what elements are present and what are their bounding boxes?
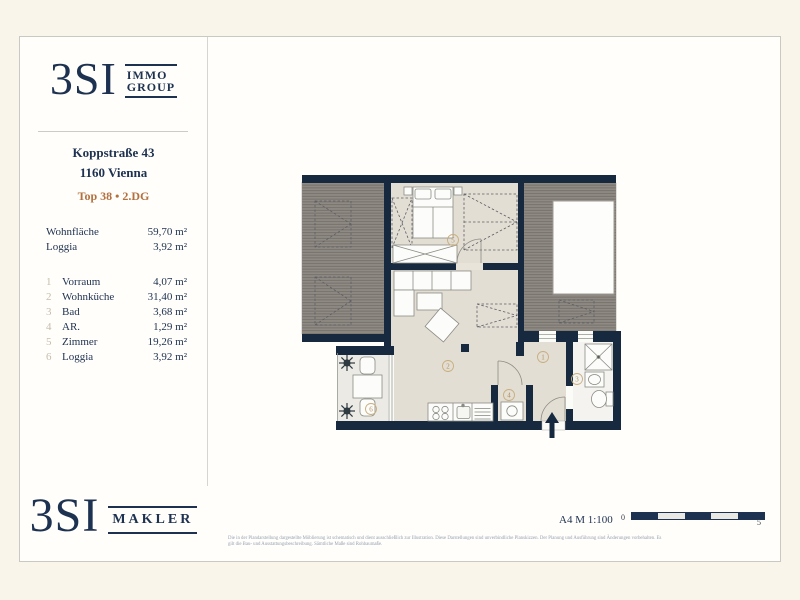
kitchen-counter — [428, 403, 493, 421]
address-block: Koppstraße 43 1160 Vienna — [20, 143, 207, 183]
window-icon — [539, 331, 556, 342]
logo-3si-text: 3SI — [50, 57, 117, 101]
svg-text:2: 2 — [446, 363, 450, 371]
bed — [413, 187, 453, 238]
column — [461, 344, 469, 352]
room-number: 5 — [46, 335, 62, 350]
scale-bar — [631, 512, 765, 520]
room-area: 3,92 m² — [153, 350, 187, 365]
room-area: 1,29 m² — [153, 320, 187, 335]
room-number: 1 — [46, 275, 62, 290]
svg-text:1: 1 — [541, 354, 545, 362]
loggia-glass-wall — [388, 355, 394, 421]
scale-segment — [711, 513, 737, 519]
room-row: 3 Bad 3,68 m² — [46, 305, 187, 320]
room-area: 19,26 m² — [148, 335, 187, 350]
room-row: 5 Zimmer 19,26 m² — [46, 335, 187, 350]
svg-text:5: 5 — [451, 237, 455, 245]
street-line: Koppstraße 43 — [20, 143, 207, 163]
room-name: Vorraum — [62, 275, 153, 290]
area-summary: Wohnfläche 59,70 m² Loggia 3,92 m² — [46, 225, 187, 255]
room-area: 31,40 m² — [148, 290, 187, 305]
roof-terrace — [553, 201, 614, 294]
scale-segment — [632, 513, 658, 519]
plan-sheet: 3SI IMMO GROUP Koppstraße 43 1160 Vienna… — [19, 36, 781, 562]
wardrobe-crossed — [393, 245, 457, 263]
room-name: Zimmer — [62, 335, 148, 350]
logo-immo-group-box: IMMO GROUP — [125, 64, 177, 98]
room-name: Bad — [62, 305, 153, 320]
scale-end-label: 5 — [757, 518, 761, 527]
info-panel: 3SI IMMO GROUP Koppstraße 43 1160 Vienna… — [20, 37, 207, 563]
svg-text:3: 3 — [575, 376, 579, 384]
room-row: 6 Loggia 3,92 m² — [46, 350, 187, 365]
room-name: AR. — [62, 320, 153, 335]
room-row: 2 Wohnküche 31,40 m² — [46, 290, 187, 305]
room-name: Wohnküche — [62, 290, 148, 305]
room-area: 3,68 m² — [153, 305, 187, 320]
plant-icon — [339, 403, 355, 419]
summary-label: Wohnfläche — [46, 225, 99, 240]
summary-value: 59,70 m² — [148, 225, 187, 240]
summary-label: Loggia — [46, 240, 77, 255]
roof-right — [524, 183, 616, 331]
nightstand — [404, 187, 412, 195]
makler-logo: 3SI MAKLER — [20, 493, 207, 539]
plant-icon — [339, 355, 355, 371]
shower — [585, 344, 612, 370]
room-row: 1 Vorraum 4,07 m² — [46, 275, 187, 290]
svg-text:6: 6 — [369, 406, 373, 414]
room-row: 4 AR. 1,29 m² — [46, 320, 187, 335]
toilet — [592, 391, 614, 408]
bath-door-opening — [566, 386, 573, 409]
room-area: 4,07 m² — [153, 275, 187, 290]
room-number: 3 — [46, 305, 62, 320]
room-list: 1 Vorraum 4,07 m² 2 Wohnküche 31,40 m² 3… — [46, 275, 187, 365]
scale-start-label: 0 — [621, 513, 625, 522]
room-number: 2 — [46, 290, 62, 305]
vertical-divider — [207, 37, 208, 486]
immo-group-logo: 3SI IMMO GROUP — [20, 57, 207, 101]
washbasin — [585, 372, 604, 387]
roof-left — [302, 182, 384, 334]
room-number: 6 — [46, 350, 62, 365]
nightstand — [454, 187, 462, 195]
sheet-format-label: A4 M 1:100 — [559, 514, 613, 526]
disclaimer-line: gilt die Bau- und Ausstattungsbeschreibu… — [228, 542, 648, 548]
scale-segment — [658, 513, 684, 519]
washing-machine — [501, 402, 523, 420]
disclaimer-text: Die in der Plandarstellung dargestellte … — [228, 536, 648, 549]
scale-segment — [685, 513, 711, 519]
logo-makler-box: MAKLER — [108, 506, 197, 534]
logo-3si-text: 3SI — [30, 493, 100, 539]
floor-plan: 1 2 3 4 5 6 — [296, 165, 671, 450]
summary-row: Wohnfläche 59,70 m² — [46, 225, 187, 240]
summary-value: 3,92 m² — [153, 240, 187, 255]
logo-divider — [38, 131, 188, 132]
room-name: Loggia — [62, 350, 153, 365]
logo-group-line: GROUP — [127, 80, 175, 94]
unit-label: Top 38 • 2.DG — [20, 189, 207, 204]
city-line: 1160 Vienna — [20, 163, 207, 183]
svg-text:4: 4 — [507, 392, 511, 400]
room-number: 4 — [46, 320, 62, 335]
window-icon — [578, 331, 593, 342]
summary-row: Loggia 3,92 m² — [46, 240, 187, 255]
